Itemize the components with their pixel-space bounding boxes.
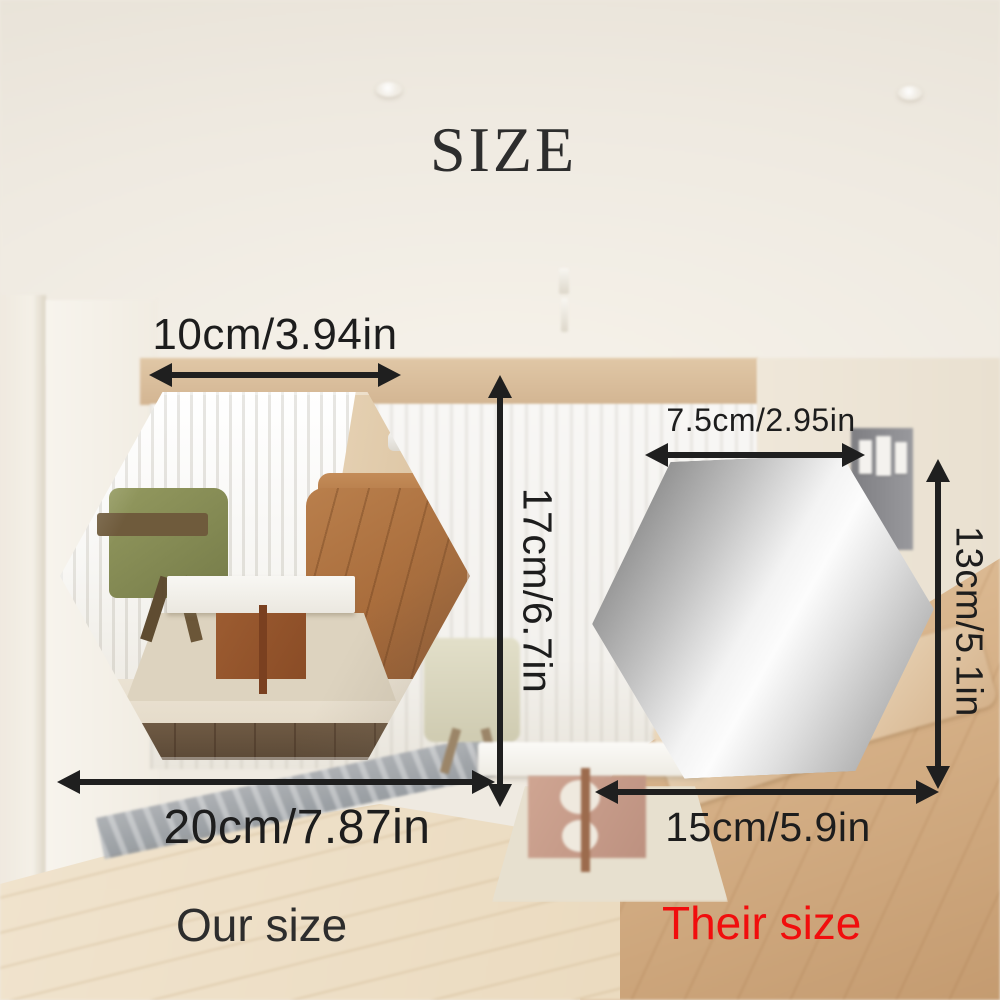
our-top-width-label: 10cm/3.94in xyxy=(140,310,410,360)
ceiling-light-left xyxy=(376,82,402,97)
ceiling-light-right xyxy=(898,86,922,100)
size-title: SIZE xyxy=(430,113,577,187)
our-bottom-width-label: 20cm/7.87in xyxy=(150,800,444,855)
size-comparison-graphic: SIZE 10cm/3.94in 17cm/6.7in 20cm/7.87in … xyxy=(0,0,1000,1000)
our-bottom-width-arrow-icon xyxy=(78,779,474,785)
hanging-fixture xyxy=(559,268,569,294)
coffee-table-base-bar xyxy=(581,768,590,872)
their-bottom-width-arrow-icon xyxy=(616,789,918,795)
their-size-caption: Their size xyxy=(662,896,861,950)
background-chair xyxy=(424,638,520,742)
their-top-width-arrow-icon xyxy=(666,452,844,458)
their-top-width-label: 7.5cm/2.95in xyxy=(655,402,867,439)
our-height-label: 17cm/6.7in xyxy=(514,441,561,741)
their-bottom-width-label: 15cm/5.9in xyxy=(660,804,876,851)
hanging-fixture-rod xyxy=(561,298,568,332)
their-height-label: 13cm/5.1in xyxy=(947,472,990,772)
our-top-width-arrow-icon xyxy=(170,372,380,378)
our-height-arrow-icon xyxy=(497,396,503,786)
left-wall-column xyxy=(0,295,46,895)
their-height-arrow-icon xyxy=(935,480,941,768)
our-size-caption: Our size xyxy=(176,898,347,952)
